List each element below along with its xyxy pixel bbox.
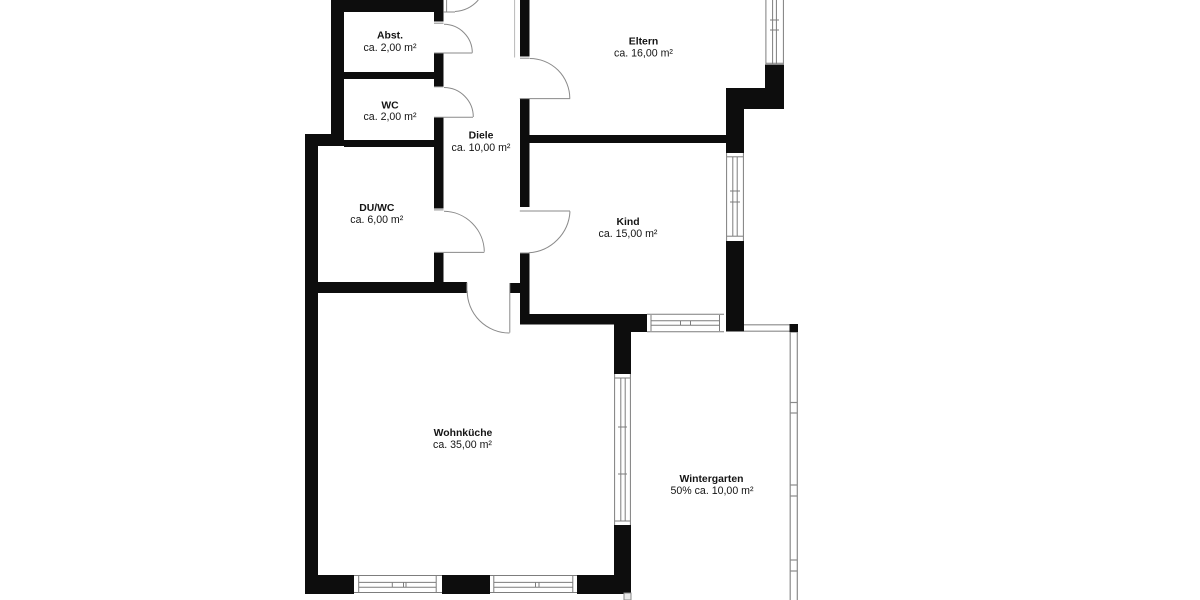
svg-text:Kind: Kind [616,217,639,228]
svg-text:Wintergarten: Wintergarten [680,474,744,485]
svg-text:Wohnküche: Wohnküche [434,428,493,439]
svg-text:ca. 6,00 m²: ca. 6,00 m² [350,214,403,226]
svg-text:Diele: Diele [469,131,494,142]
svg-text:50% ca. 10,00 m²: 50% ca. 10,00 m² [670,485,753,497]
svg-text:DU/WC: DU/WC [359,203,395,214]
svg-text:Eltern: Eltern [629,37,658,48]
svg-text:ca. 16,00 m²: ca. 16,00 m² [614,48,673,60]
svg-text:WC: WC [381,101,399,112]
svg-text:ca. 35,00 m²: ca. 35,00 m² [433,439,492,451]
svg-text:ca. 10,00 m²: ca. 10,00 m² [452,142,511,154]
svg-text:ca. 2,00 m²: ca. 2,00 m² [364,111,417,123]
svg-text:ca. 2,00 m²: ca. 2,00 m² [364,42,417,54]
svg-text:ca. 15,00 m²: ca. 15,00 m² [599,228,658,240]
svg-text:Abst.: Abst. [377,31,403,42]
